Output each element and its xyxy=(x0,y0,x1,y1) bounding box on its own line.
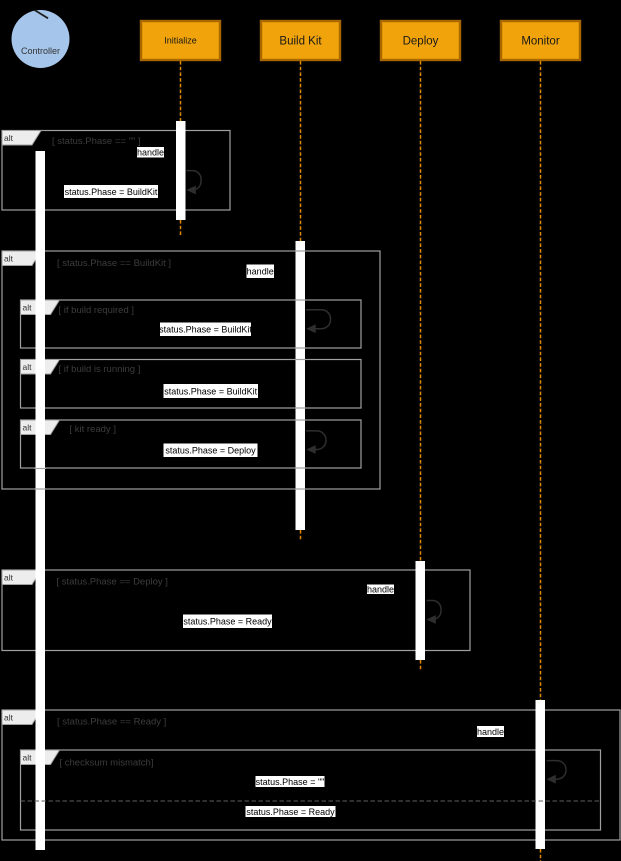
svg-text:[ status.Phase == Ready ]: [ status.Phase == Ready ] xyxy=(57,717,166,728)
svg-text:status.Phase = Ready: status.Phase = Ready xyxy=(183,617,272,627)
svg-text:handle: handle xyxy=(477,727,504,737)
svg-text:status.Phase = "": status.Phase = "" xyxy=(256,777,325,787)
svg-text:alt: alt xyxy=(4,573,14,583)
svg-text:status.Phase = BuildKit: status.Phase = BuildKit xyxy=(65,187,158,197)
svg-text:alt: alt xyxy=(23,362,33,372)
svg-text:status.Phase = BuildKit: status.Phase = BuildKit xyxy=(159,325,252,335)
svg-text:Initialize: Initialize xyxy=(164,36,197,46)
svg-text:[ checksum mismatch]: [ checksum mismatch] xyxy=(60,758,154,769)
svg-text:[ kit ready ]: [ kit ready ] xyxy=(70,424,116,435)
svg-text:alt: alt xyxy=(23,303,33,313)
svg-text:alt: alt xyxy=(4,713,14,723)
svg-text:alt: alt xyxy=(4,133,14,143)
svg-text:[ if build is running ]: [ if build is running ] xyxy=(59,364,141,375)
svg-text:alt: alt xyxy=(4,254,14,264)
svg-text:[ status.Phase == "" ]: [ status.Phase == "" ] xyxy=(52,136,141,147)
svg-text:status.Phase = Ready: status.Phase = Ready xyxy=(246,807,335,817)
svg-text:handle: handle xyxy=(367,584,394,594)
svg-text:[ status.Phase == Deploy ]: [ status.Phase == Deploy ] xyxy=(57,577,168,588)
svg-text:[ if build required ]: [ if build required ] xyxy=(59,305,135,316)
svg-text:alt: alt xyxy=(23,423,33,433)
svg-text:handle: handle xyxy=(137,148,164,158)
svg-text:Monitor: Monitor xyxy=(521,36,560,48)
svg-text:status.Phase = BuildKit: status.Phase = BuildKit xyxy=(164,386,257,396)
svg-text:handle: handle xyxy=(247,267,274,277)
svg-text:[ status.Phase == BuildKit ]: [ status.Phase == BuildKit ] xyxy=(57,258,171,269)
svg-text:Deploy: Deploy xyxy=(403,36,439,48)
svg-text:alt: alt xyxy=(23,753,33,763)
svg-text:Controller: Controller xyxy=(21,46,60,56)
svg-text:status.Phase = Deploy: status.Phase = Deploy xyxy=(165,446,256,456)
svg-text:Build Kit: Build Kit xyxy=(279,36,322,48)
